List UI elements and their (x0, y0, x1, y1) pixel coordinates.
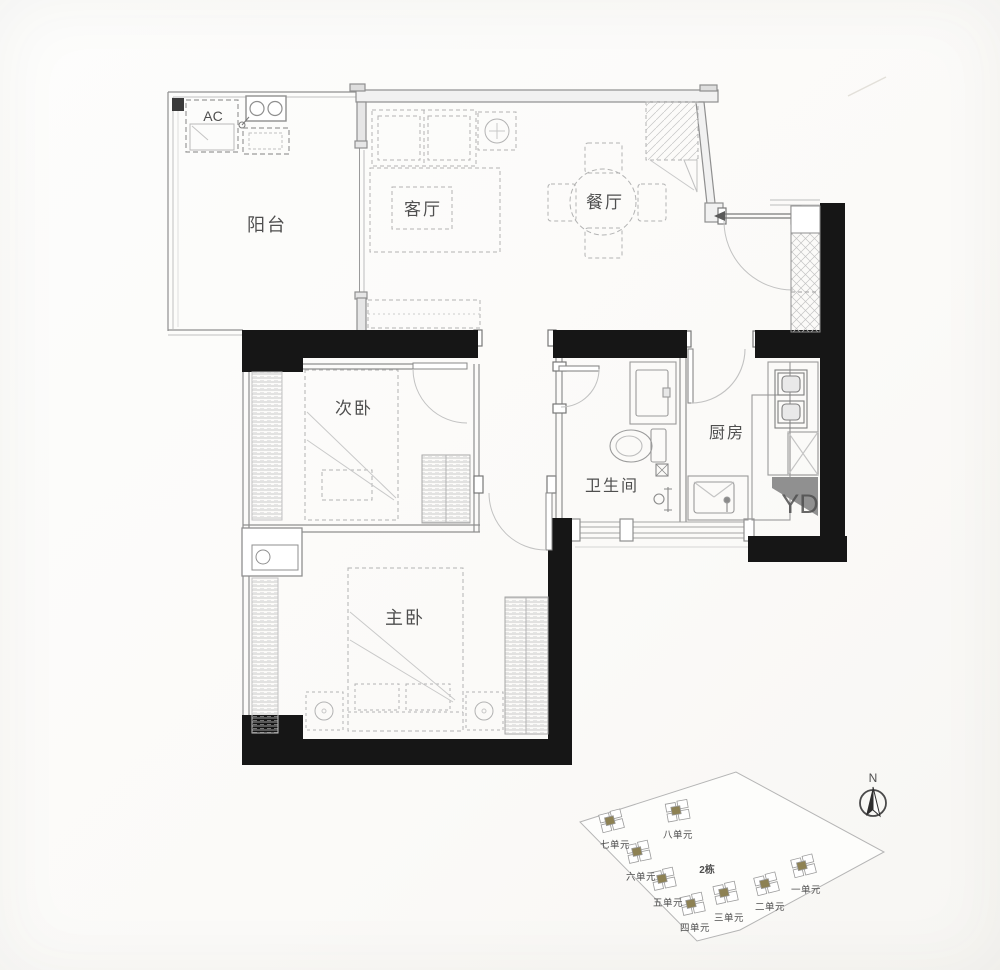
duct-shaft-lower (252, 578, 278, 733)
cooktop-icon (246, 96, 286, 121)
kitchen-door (688, 349, 745, 403)
room-master-bedroom (242, 372, 552, 734)
unit4-label: 四单元 (680, 922, 710, 934)
room-living (368, 110, 516, 328)
unit8-label: 八单元 (663, 829, 693, 841)
balcony-label: 阳台 (247, 215, 287, 235)
second-bedroom-door (413, 363, 467, 423)
stove-icon (775, 370, 807, 428)
room-dining (548, 102, 698, 258)
master-door (489, 493, 552, 550)
duct-shaft-upper (252, 372, 282, 520)
floor-drain-icon (656, 464, 668, 476)
building-number-label: 2栋 (699, 863, 715, 876)
shower-valve-icon (654, 487, 672, 512)
floor-plan-page: AC 阳台 客厅 (0, 0, 1000, 970)
floor-drain-icon (172, 98, 184, 111)
unit7-label: 七单元 (600, 839, 630, 851)
room-balcony: AC 阳台 (172, 96, 289, 235)
unit2-label: 二单元 (755, 901, 785, 913)
kitchen-label: 厨房 (709, 424, 745, 442)
unit5-label: 五单元 (653, 897, 683, 909)
second-bedroom-label: 次卧 (335, 399, 373, 418)
north-label: N (869, 771, 878, 785)
vanity (630, 362, 676, 424)
unit3-label: 三单元 (714, 912, 744, 924)
ac-label: AC (203, 108, 222, 124)
shoe-cabinet (791, 233, 820, 332)
master-bedroom-label: 主卧 (385, 608, 425, 628)
dining-room-label: 餐厅 (586, 193, 624, 212)
kitchen-lower-cabinet (788, 432, 818, 475)
unit1-label: 一单元 (791, 884, 821, 896)
tv-console (368, 300, 480, 328)
entry-cabinet-top (791, 206, 820, 233)
side-table-lamp (478, 112, 516, 150)
bed-second (305, 370, 398, 520)
unit6-label: 六单元 (626, 871, 656, 883)
toilet-icon (610, 429, 666, 462)
kitchen-sink (688, 476, 748, 520)
site-plan: 一单元 二单元 三单元 四单元 五单元 六单元 七单元 八单元 2栋 N (580, 771, 886, 941)
nightstand-left (306, 692, 343, 730)
floor-plan-drawing: AC 阳台 客厅 (0, 0, 1000, 970)
washer-cabinet (242, 528, 302, 576)
entry-area (714, 206, 820, 332)
nightstand-right (466, 692, 503, 730)
living-room-label: 客厅 (404, 200, 442, 219)
bathroom-label: 卫生间 (585, 477, 639, 495)
bed-master (348, 568, 463, 731)
bathroom-door (559, 366, 599, 407)
north-arrow-icon: N (860, 771, 886, 816)
room-second-bedroom (305, 363, 470, 523)
sofa (372, 110, 476, 166)
photo-artifact-line (848, 77, 886, 96)
hall-cabinet (646, 102, 698, 192)
faucet-icon (239, 117, 249, 128)
watermark-text: YD (781, 489, 819, 519)
